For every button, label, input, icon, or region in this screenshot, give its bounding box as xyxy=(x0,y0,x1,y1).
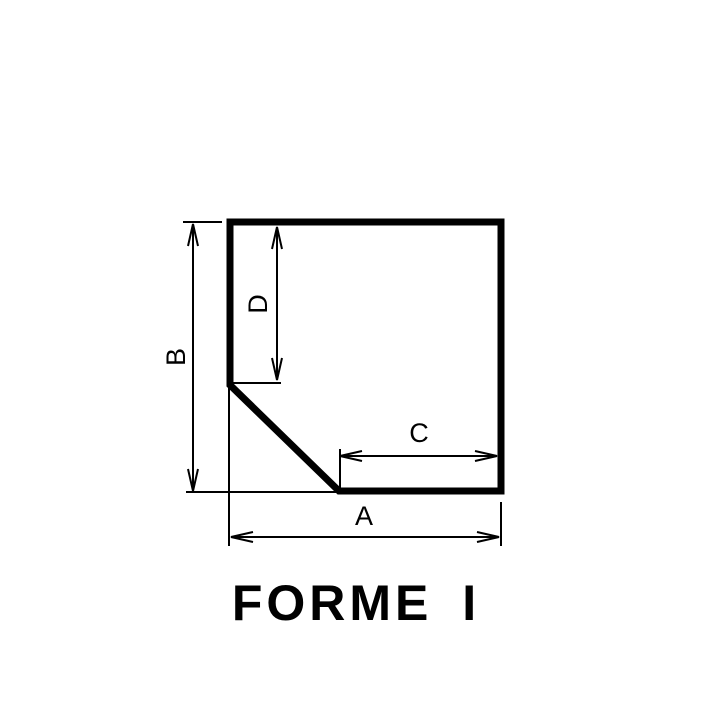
dimension-label-C: C xyxy=(409,418,429,448)
shape-outline-chamfered-square xyxy=(230,222,501,491)
dimension-label-B: B xyxy=(161,348,191,366)
dimension-label-A: A xyxy=(355,501,373,531)
diagram-canvas: BDCA FORME I xyxy=(0,0,720,720)
shape-layer xyxy=(230,222,501,491)
dimension-label-D: D xyxy=(243,294,273,314)
figure-title: FORME I xyxy=(0,578,712,628)
dimensions-layer: BDCA xyxy=(161,222,501,546)
